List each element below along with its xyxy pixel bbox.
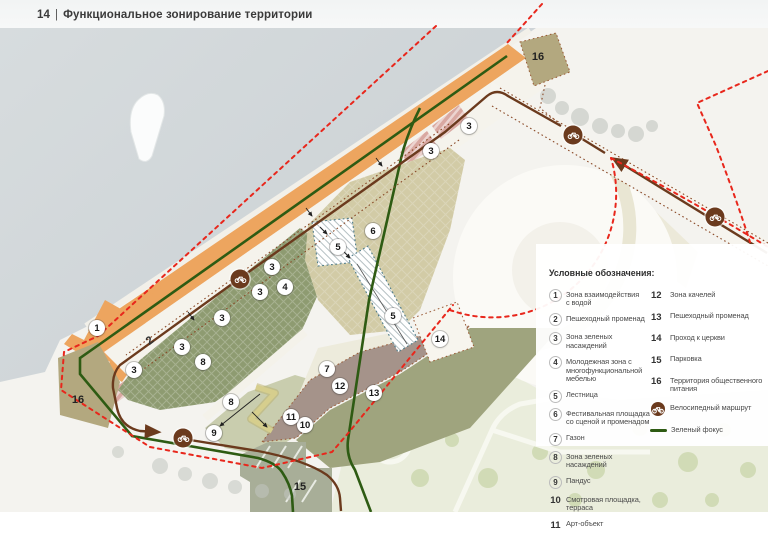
legend-item-number: 10 bbox=[549, 494, 562, 507]
legend-item-number: 11 bbox=[549, 519, 562, 532]
zone-marker: 5 bbox=[330, 239, 346, 255]
bike-route-icon bbox=[231, 270, 250, 289]
legend-item: 12Зона качелей bbox=[650, 289, 768, 302]
bike-route-icon bbox=[174, 429, 193, 448]
legend-item-number: 7 bbox=[549, 433, 562, 446]
legend-item: 10Смотровая площадка, терраса bbox=[549, 494, 650, 513]
title-divider: | bbox=[55, 9, 58, 21]
legend-item-label: Территория общественного питания bbox=[670, 375, 762, 394]
legend-item: 4Молодежная зона с многофункциональной м… bbox=[549, 356, 650, 384]
legend-item-label: Фестивальная площадка со сценой и промен… bbox=[566, 408, 650, 427]
legend-item-number: 5 bbox=[549, 390, 562, 403]
legend-item: 14Проход к церкви bbox=[650, 332, 768, 345]
legend-item-label: Зона качелей bbox=[670, 289, 715, 299]
legend-item: 7Газон bbox=[549, 433, 650, 446]
zone-marker: 3 bbox=[264, 259, 280, 275]
legend-item-label: Смотровая площадка, терраса bbox=[566, 494, 641, 513]
legend-item-number: 1 bbox=[549, 289, 562, 302]
legend-item: 3Зона зеленых насаждений bbox=[549, 332, 650, 351]
zone-marker: 3 bbox=[214, 310, 230, 326]
legend-item-number: 3 bbox=[549, 332, 562, 345]
legend-item-number: 4 bbox=[549, 356, 562, 369]
bike-route-icon bbox=[564, 126, 583, 145]
zone-marker: 3 bbox=[423, 143, 439, 159]
page-number: 14 bbox=[37, 9, 50, 21]
legend-item-label: Парковка bbox=[670, 354, 702, 364]
legend-item: 2Пешеходный променад bbox=[549, 313, 650, 326]
legend-item: 16Территория общественного питания bbox=[650, 375, 768, 394]
bike-route-icon bbox=[651, 402, 665, 416]
zone-marker: 3 bbox=[252, 284, 268, 300]
legend-item: 11Арт-объект bbox=[549, 519, 650, 532]
zone-marker: 11 bbox=[283, 409, 299, 425]
legend-item: 15Парковка bbox=[650, 354, 768, 367]
zone-marker: 10 bbox=[297, 417, 313, 433]
zone-marker: 12 bbox=[332, 378, 348, 394]
legend-item-number: 9 bbox=[549, 476, 562, 489]
zone-marker: 9 bbox=[206, 425, 222, 441]
bicycle-glyph bbox=[652, 405, 664, 414]
legend-item-number: 16 bbox=[650, 375, 666, 388]
legend-item-label: Арт-объект bbox=[566, 519, 603, 529]
legend-item-number: 6 bbox=[549, 408, 562, 421]
page-title: 14|Функциональное зонирование территории bbox=[37, 9, 312, 21]
title-text: Функциональное зонирование территории bbox=[63, 9, 312, 21]
legend-item-label: Велосипедный маршрут bbox=[670, 402, 751, 412]
legend-item: 6Фестивальная площадка со сценой и проме… bbox=[549, 408, 650, 427]
legend-item-label: Зеленый фокус bbox=[671, 425, 723, 435]
legend-column-2: 12Зона качелей13Пешеходный променад14Про… bbox=[650, 289, 768, 535]
legend-item: 13Пешеходный променад bbox=[650, 311, 768, 324]
zone-marker: 15 bbox=[292, 479, 308, 495]
zone-marker: 16 bbox=[70, 392, 86, 408]
legend-item-label: Зона зеленых насаждений bbox=[566, 332, 612, 351]
zone-marker: 3 bbox=[461, 118, 477, 134]
zone-marker: 6 bbox=[365, 223, 381, 239]
legend-item: 1Зона взаимодействия с водой bbox=[549, 289, 650, 308]
zone-marker: 3 bbox=[174, 339, 190, 355]
legend-column-1: 1Зона взаимодействия с водой2Пешеходный … bbox=[549, 289, 650, 535]
legend-item-number: 12 bbox=[650, 289, 666, 302]
green-focus-line bbox=[650, 429, 667, 433]
legend-item-label: Пешеходный променад bbox=[670, 311, 749, 321]
legend-heading: Условные обозначения: bbox=[549, 268, 768, 278]
bicycle-glyph bbox=[234, 275, 246, 284]
legend-item-label: Лестница bbox=[566, 390, 598, 400]
zone-marker: 4 bbox=[277, 279, 293, 295]
zone-marker: 5 bbox=[385, 308, 401, 324]
legend-item: 8Зона зеленых насаждений bbox=[549, 451, 650, 470]
legend-item-number: 2 bbox=[549, 313, 562, 326]
legend-item-label: Газон bbox=[566, 433, 585, 443]
bicycle-glyph bbox=[709, 213, 721, 222]
legend-item-label: Молодежная зона с многофункциональной ме… bbox=[566, 356, 642, 384]
zone-marker: 16 bbox=[530, 49, 546, 65]
legend-item-number: 15 bbox=[650, 354, 666, 367]
legend-item-label: Проход к церкви bbox=[670, 332, 725, 342]
legend-item-label: Пешеходный променад bbox=[566, 313, 645, 323]
zone-marker: 8 bbox=[223, 394, 239, 410]
zone-marker: 8 bbox=[195, 354, 211, 370]
legend-item-number: 8 bbox=[549, 451, 562, 464]
legend-item-number: 14 bbox=[650, 332, 666, 345]
zone-marker: 3 bbox=[126, 362, 142, 378]
legend-item-label: Зона взаимодействия с водой bbox=[566, 289, 639, 308]
zone-marker: 7 bbox=[319, 361, 335, 377]
legend-item: 9Пандус bbox=[549, 476, 650, 489]
zone-marker: 13 bbox=[366, 385, 382, 401]
legend-item-label: Пандус bbox=[566, 476, 591, 486]
map-legend: Условные обозначения: 1Зона взаимодейств… bbox=[549, 268, 768, 535]
legend-item: Велосипедный маршрут bbox=[650, 402, 768, 416]
bicycle-glyph bbox=[567, 131, 579, 140]
legend-item-number: 13 bbox=[650, 311, 666, 324]
slide-page: 14|Функциональное зонирование территории… bbox=[0, 0, 768, 535]
bike-route-icon bbox=[706, 208, 725, 227]
legend-item: Зеленый фокус bbox=[650, 425, 768, 435]
legend-item: 5Лестница bbox=[549, 390, 650, 403]
zone-marker: 1 bbox=[89, 320, 105, 336]
bicycle-glyph bbox=[177, 434, 189, 443]
legend-item-label: Зона зеленых насаждений bbox=[566, 451, 650, 470]
zone-marker: 14 bbox=[432, 331, 448, 347]
